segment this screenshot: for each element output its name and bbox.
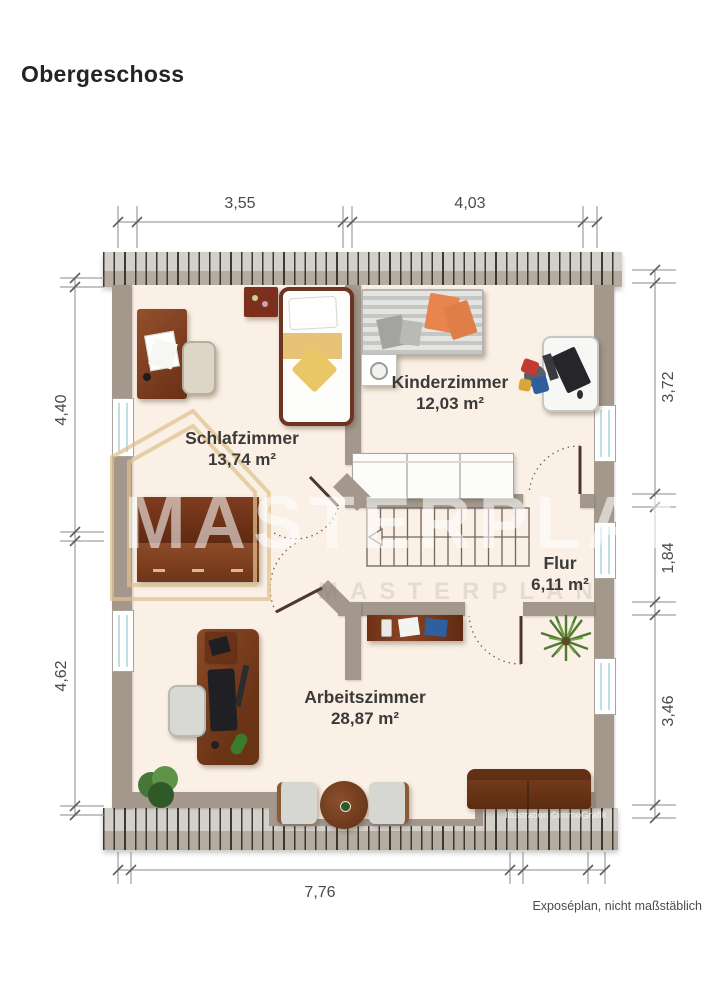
plant-foliage [148,782,174,808]
window-arbeitszimmer-left [112,610,134,672]
chair-schlafzimmer [182,341,216,395]
dim-top-1: 3,55 [224,195,255,213]
bottle [381,619,392,637]
desk-object [143,373,151,381]
sofa-arbeitszimmer [467,769,591,809]
sofa-seam [527,780,529,809]
closet [352,453,514,499]
floorplan-page: Obergeschoss [0,0,724,1000]
window-schlafzimmer [112,398,134,457]
table-chair-left [277,782,317,824]
paper [398,617,420,638]
label-arbeitszimmer: Arbeitszimmer 28,87 m² [304,686,426,730]
window-flur [594,522,616,579]
mouse [211,741,219,749]
room-area: 6,11 m² [531,574,589,596]
wall-stairs-top-stub [580,494,594,508]
sideboard-flur [367,615,463,641]
window-kinderzimmer [594,405,616,462]
drawer-handle [231,569,243,572]
page-title: Obergeschoss [21,61,184,88]
dresser-schlafzimmer [137,497,259,582]
dim-right-2: 1,84 [660,542,678,573]
table-chair-right [369,782,409,824]
room-name: Arbeitszimmer [304,686,426,708]
chair-cushion [530,375,550,395]
pillow [288,296,338,330]
drawer-handle [192,569,204,572]
drawer-handle [153,569,165,572]
round-table [320,781,368,829]
chair-cushion [518,378,532,392]
room-name: Kinderzimmer [392,371,509,393]
printer [208,636,230,656]
mouse [577,390,583,399]
desk-shelf [205,632,235,662]
dresser-top [137,497,259,543]
room-area: 12,03 m² [392,393,509,415]
label-flur: Flur 6,11 m² [531,552,589,596]
blue-cloth [424,618,448,637]
pillow-orange [442,300,477,340]
bed-kinderzimmer [361,289,484,356]
monitor [551,346,591,393]
keyboard [235,665,250,707]
dim-bottom-1: 7,76 [304,884,335,902]
flowers [252,295,258,301]
nightstand-schlafzimmer [244,287,278,317]
footer-note: Exposéplan, nicht maßstäblich [532,899,702,913]
desk-schlafzimmer [137,309,187,399]
lamp [370,362,388,380]
dim-right-3: 3,46 [660,695,678,726]
dresser-drawers [137,543,259,582]
room-area: 28,87 m² [304,708,426,730]
dim-right-1: 3,72 [660,371,678,402]
window-arbeitszimmer-right [594,658,616,715]
wall-left [112,285,132,808]
wall-flur-south-right [523,602,594,616]
sofa-back [467,769,591,780]
room-name: Flur [531,552,589,574]
plant-arbeitszimmer [136,764,182,810]
room-area: 13,74 m² [185,449,299,471]
table-plant [340,801,351,812]
blanket-gray [399,320,422,347]
room-name: Schlafzimmer [185,427,299,449]
dim-left-2: 4,62 [53,660,71,691]
label-schlafzimmer: Schlafzimmer 13,74 m² [185,427,299,471]
label-kinderzimmer: Kinderzimmer 12,03 m² [392,371,509,415]
flowers [262,301,268,307]
illustration-credit: Illustration ©immoGrafik [505,810,607,821]
bed-schlafzimmer [279,287,354,426]
roof-band-top [103,252,622,287]
dim-top-2: 4,03 [454,195,485,213]
chair-arbeitszimmer [168,685,206,737]
monitor [207,668,237,731]
chair-kinderzimmer [514,355,554,401]
desk-plant [229,731,250,756]
dim-left-1: 4,40 [53,394,71,425]
desk-arbeitszimmer [197,629,259,765]
wall-stub-arbeitszimmer [345,602,361,680]
